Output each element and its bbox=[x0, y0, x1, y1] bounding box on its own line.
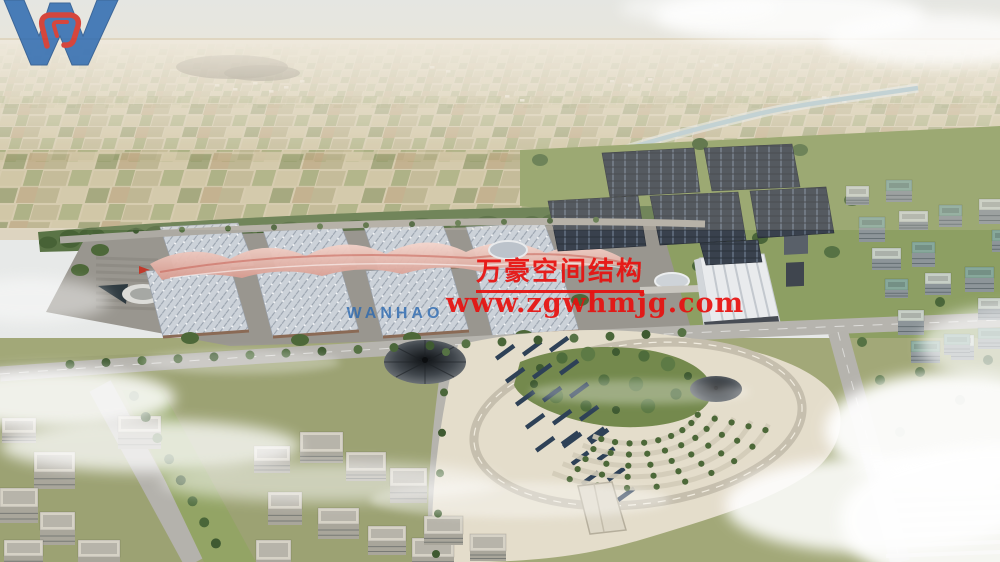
aerial-render: WANHAO 万豪空间结构 www.zgwhmjg.com bbox=[0, 0, 1000, 562]
scene-canvas bbox=[0, 0, 1000, 562]
